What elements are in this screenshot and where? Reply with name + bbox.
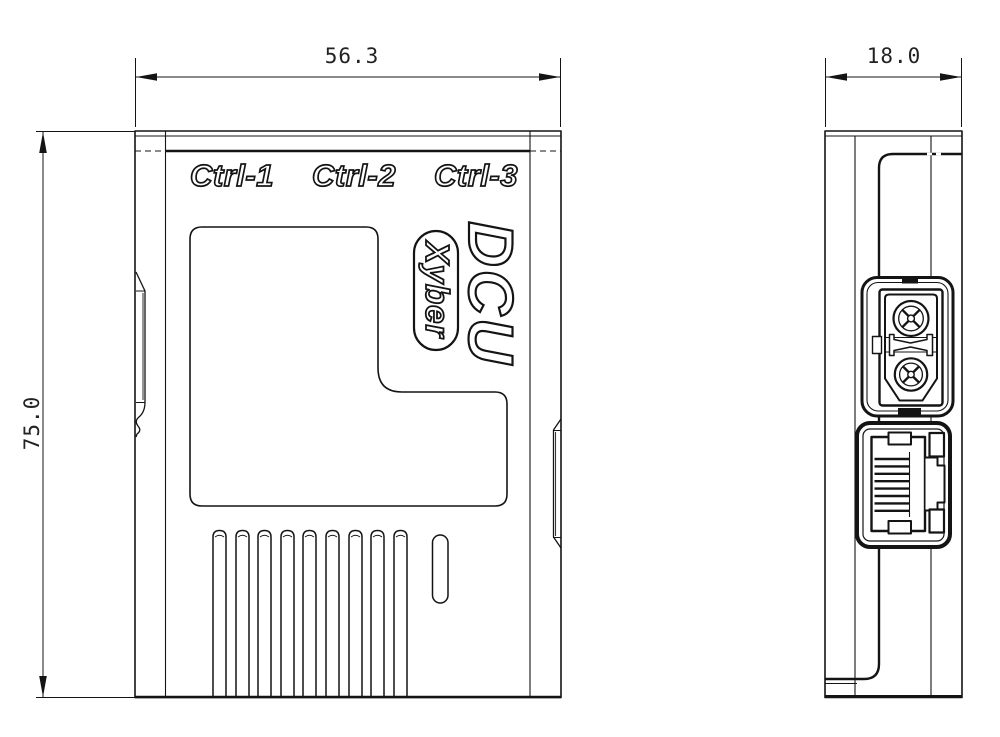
brand-label: Xyber (418, 242, 456, 339)
rj45-latch-slot (926, 458, 945, 511)
side-view (825, 131, 962, 698)
vent-slot (213, 531, 226, 698)
side-width-dim-label: 18.0 (867, 44, 922, 68)
drawing-linework (0, 0, 1000, 737)
rj45-led-window-top (930, 433, 945, 457)
left-snap-clip (136, 272, 146, 437)
vent-slot (258, 531, 271, 698)
ctrl-3-label: Ctrl-3 (434, 158, 518, 194)
front-width-dim-label: 56.3 (325, 44, 380, 68)
dimension-side-width (826, 58, 962, 127)
xt30-terminal-lower (895, 358, 927, 390)
ctrl-2-label: Ctrl-2 (312, 158, 396, 194)
xt30-terminal-upper (894, 301, 929, 336)
front-height-dim-label: 75.0 (20, 396, 44, 451)
xt30-power-connector-icon (862, 278, 953, 417)
vent-slot (236, 531, 249, 698)
vent-slot (303, 531, 316, 698)
vent-slots (213, 531, 407, 698)
technical-drawing-canvas: 56.3 75.0 18.0 Ctrl-1 Ctrl-2 Ctrl-3 DCU … (0, 0, 1000, 737)
vent-slot (349, 531, 362, 698)
ctrl-1-label: Ctrl-1 (190, 158, 274, 194)
vent-slot (281, 531, 294, 698)
rj45-ethernet-port-icon (857, 423, 950, 547)
product-name-label: DCU (454, 221, 526, 367)
vent-slot (371, 531, 384, 698)
front-view (135, 131, 561, 698)
vent-slot (326, 531, 339, 698)
right-snap-clip (553, 419, 561, 548)
dimension-front-width (136, 58, 561, 127)
dimension-front-height (36, 132, 135, 698)
vent-slot (394, 531, 407, 698)
front-body-outline (135, 131, 561, 698)
pill-slot (433, 535, 449, 603)
rj45-led-window-bottom (930, 510, 945, 533)
